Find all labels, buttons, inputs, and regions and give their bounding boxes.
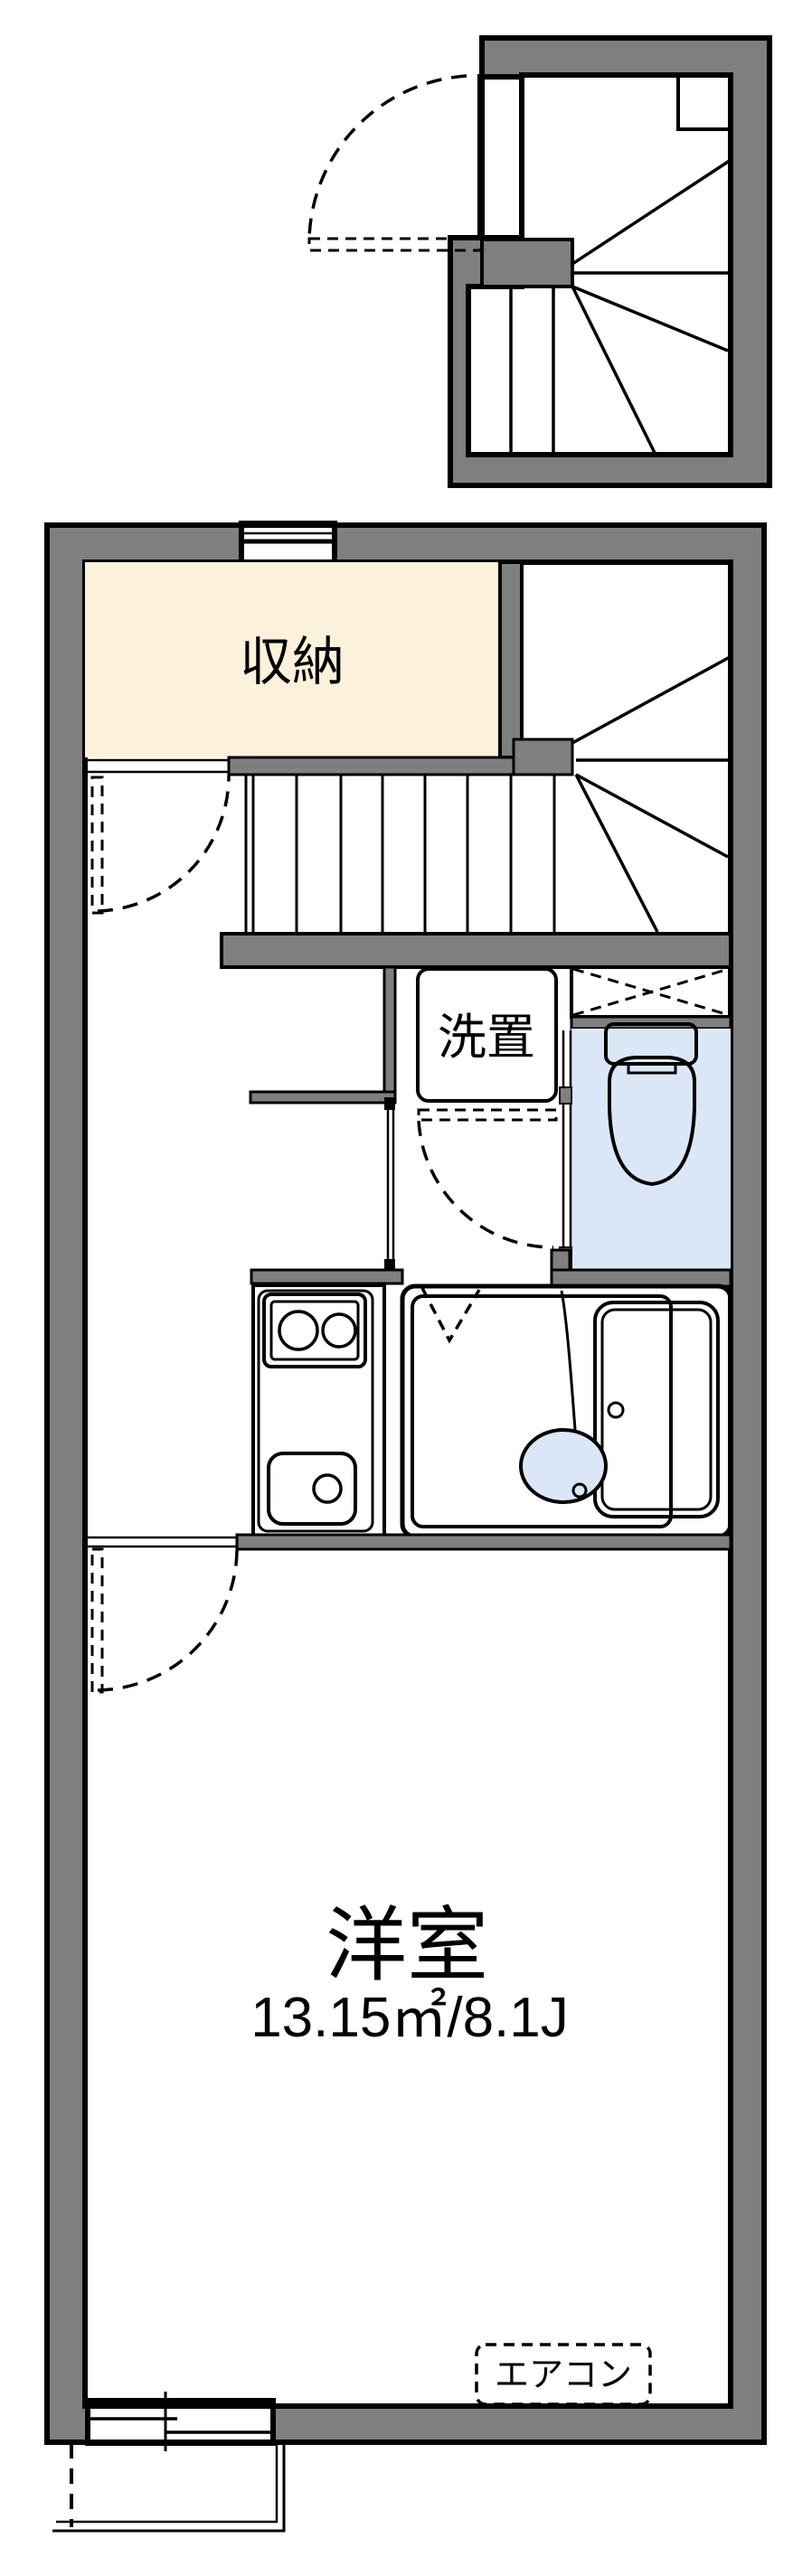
stair-newel-wall — [482, 240, 572, 287]
bathroom — [402, 1286, 731, 1537]
aircon-box: エアコン — [477, 2345, 650, 2404]
storage-right-wall — [500, 562, 522, 757]
stairs-bottom-wall — [222, 934, 731, 967]
bedroom-label: 洋室 — [326, 1901, 488, 1991]
laundry-door-arc — [419, 1121, 553, 1247]
balcony-outer-rail — [52, 2443, 284, 2531]
door-panel — [92, 777, 102, 913]
corridor-wall-horizontal — [250, 1092, 395, 1103]
balcony-inner-rail — [56, 2443, 277, 2522]
sink — [269, 1453, 355, 1524]
tub-drain — [609, 1403, 623, 1417]
stair-winders — [572, 657, 730, 932]
toilet-bath-wall — [552, 1270, 731, 1286]
wash-basin — [521, 1430, 606, 1502]
hall-divider-wall — [229, 757, 514, 775]
hall-door-swing — [92, 776, 229, 913]
bedroom-door-arc — [98, 1546, 237, 1690]
floor-plan: 収納 — [0, 0, 812, 2576]
upper-stair-treads — [511, 160, 731, 455]
washroom-door-opening — [384, 1097, 395, 1272]
entrance-door-swing — [309, 76, 481, 250]
storage-label: 収納 — [240, 633, 345, 691]
burner — [279, 1312, 317, 1349]
toilet-door-opening — [560, 1030, 571, 1270]
stove — [264, 1294, 365, 1367]
laundry-space: 洗置 — [418, 969, 556, 1247]
burner — [323, 1314, 355, 1347]
bathtub — [595, 1302, 718, 1517]
toilet-wall-stub — [552, 1250, 570, 1272]
laundry-label: 洗置 — [438, 1011, 535, 1065]
bedroom-top-wall — [237, 1535, 731, 1549]
stair-landing-box — [678, 75, 731, 129]
storage-room: 収納 — [85, 562, 522, 757]
toilet-room — [552, 967, 731, 1286]
kitchen — [251, 1270, 402, 1537]
window-top — [241, 533, 335, 541]
hall-door-opening — [85, 760, 229, 772]
corridor-walls — [250, 967, 395, 1272]
floor-plan-drawing: 収納 — [0, 0, 812, 2576]
sink-drain — [314, 1475, 341, 1502]
corridor-wall-vertical — [384, 967, 395, 1097]
door-arc — [309, 76, 467, 239]
bedroom-size-label: 13.15㎡/8.1J — [250, 1987, 569, 2049]
shower-hose — [562, 1291, 575, 1430]
bedroom-door-opening — [85, 1537, 237, 1547]
kitchen-top-wall — [251, 1270, 402, 1283]
bedroom-door-panel — [92, 1549, 102, 1692]
aircon-label: エアコン — [495, 2356, 632, 2394]
door-arc — [98, 776, 229, 911]
laundry-door-panel — [419, 1110, 556, 1120]
upper-stairwell — [309, 38, 770, 485]
main-newel-wall — [514, 739, 572, 775]
balcony — [52, 2443, 284, 2531]
unit-outline — [47, 523, 764, 2443]
stair-treads — [246, 775, 554, 934]
bedroom: 洋室 13.15㎡/8.1J エアコン — [85, 1535, 731, 2404]
